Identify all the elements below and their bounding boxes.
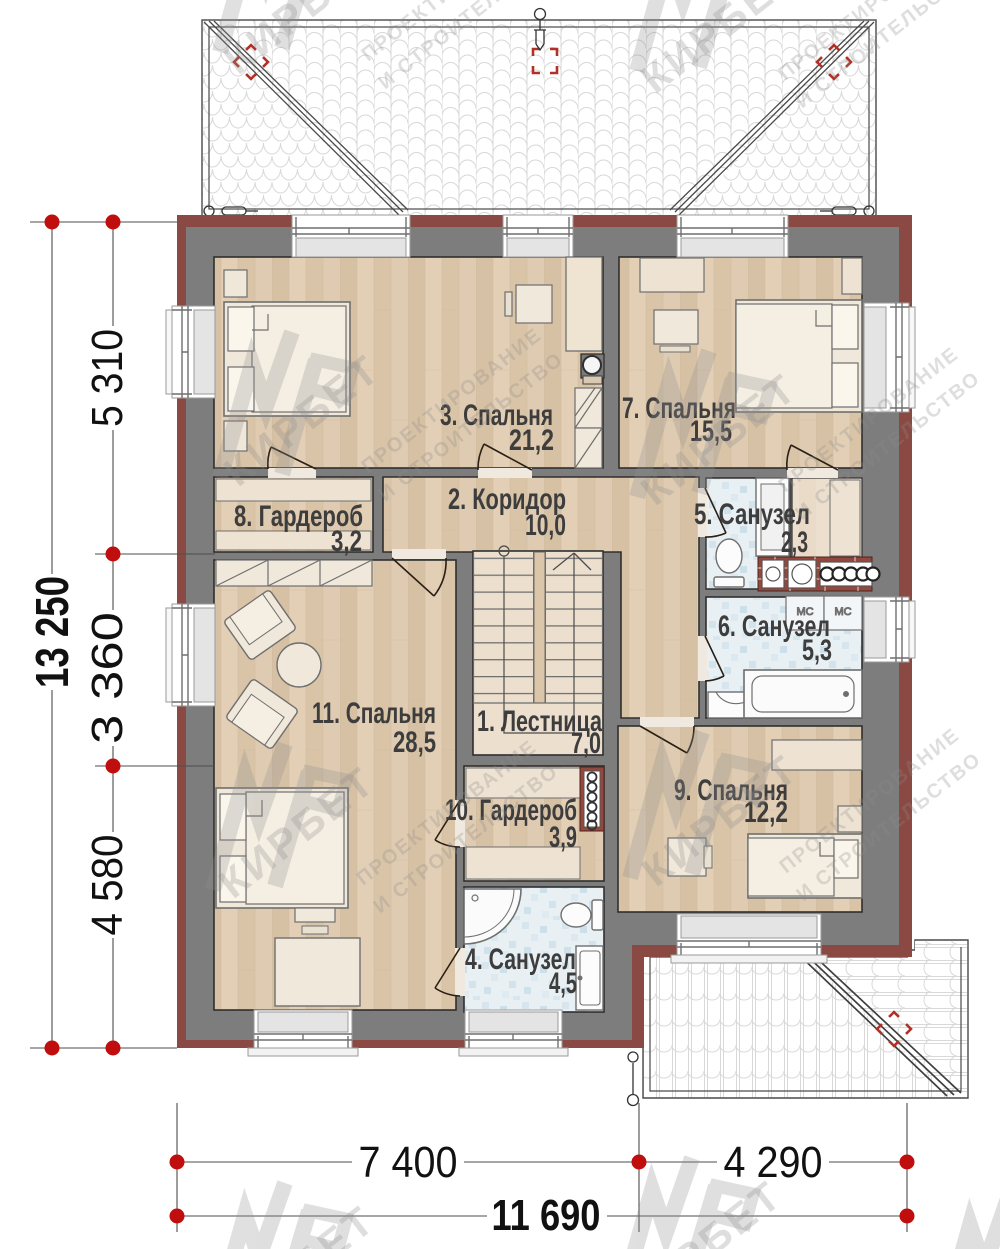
svg-text:5,3: 5,3 — [802, 634, 832, 667]
svg-text:4 580: 4 580 — [83, 835, 132, 936]
svg-text:2,3: 2,3 — [781, 526, 808, 559]
svg-text:МС: МС — [834, 606, 851, 618]
svg-text:28,5: 28,5 — [393, 726, 436, 759]
svg-text:3,9: 3,9 — [549, 821, 577, 854]
svg-text:3 360: 3 360 — [83, 612, 132, 744]
svg-text:11 690: 11 690 — [492, 1191, 601, 1240]
svg-text:7 400: 7 400 — [359, 1138, 458, 1187]
svg-text:5 310: 5 310 — [83, 329, 132, 427]
svg-text:4 290: 4 290 — [724, 1138, 823, 1187]
svg-text:10,0: 10,0 — [525, 509, 566, 542]
svg-text:4,5: 4,5 — [549, 967, 577, 1000]
svg-text:21,2: 21,2 — [509, 424, 554, 457]
svg-text:13 250: 13 250 — [26, 576, 78, 688]
svg-text:7,0: 7,0 — [571, 727, 601, 760]
svg-text:3,2: 3,2 — [331, 525, 362, 558]
